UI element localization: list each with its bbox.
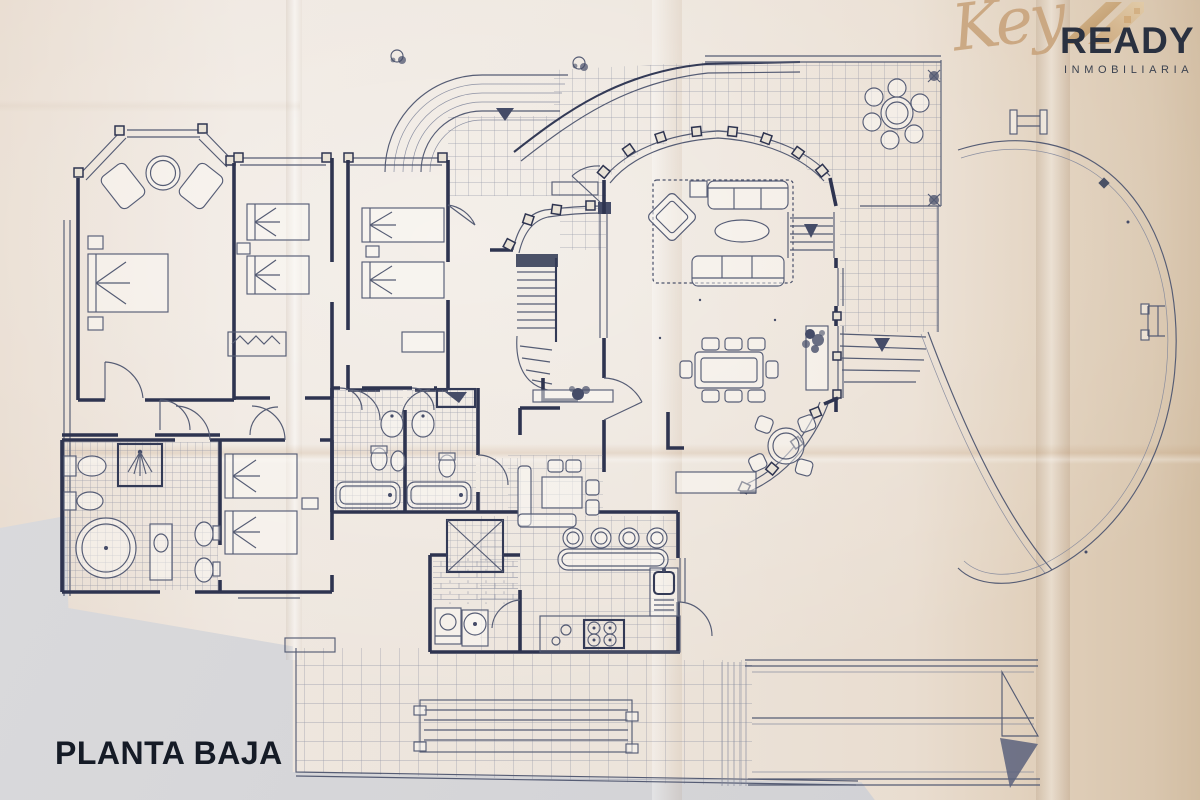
sofa [692,256,784,286]
bedroom-2 [228,153,332,398]
terrace-oval [958,110,1176,583]
bedroom-4 [220,406,332,598]
ramp-structure [722,660,1040,788]
side-table [690,181,707,197]
dining-table-set [680,338,778,402]
stair-landing [516,254,558,267]
sofa [708,181,788,209]
armchair [647,192,698,243]
vanity [150,524,172,580]
toilet [371,446,387,470]
entrance-hall [490,166,611,400]
washing-machine [435,608,461,644]
bathtub [336,482,400,508]
single-bed [362,262,444,298]
gate [1141,304,1165,340]
single-bed [247,204,309,240]
plant-icon [391,50,406,64]
brand-subtitle: INMOBILIARIA [1064,64,1193,76]
living-room [597,126,1052,573]
floor-plan-drawing [0,0,1200,800]
floor-label: PLANTA BAJA [55,735,283,772]
single-bed [225,511,297,554]
single-bed [362,208,444,242]
dresser [402,332,444,352]
coffee-table [715,220,769,242]
breakfast-nook [668,398,838,494]
fence-post [1098,177,1109,188]
single-bed [225,454,297,498]
single-bed [247,256,309,294]
toilet [439,453,455,477]
terrace-top [380,40,950,340]
floor-plan-photo: PLANTA BAJA Key READY INMOBILIARIA [0,0,1200,800]
round-table-set [747,414,817,477]
staircase [517,258,556,390]
direction-arrow [1000,738,1038,788]
washbasin [412,411,434,437]
washbasin [381,411,403,437]
garden-wall [676,472,756,493]
table-and-chairs [99,156,225,211]
kitchen-sink [650,568,678,616]
terrace-steps-upper [788,212,834,258]
double-bed [88,236,168,330]
gate [1010,110,1047,134]
brand-logo: Key READY INMOBILIARIA [940,0,1200,92]
boiler [462,610,488,646]
terrace-steps-right [840,332,1052,573]
bidet [391,451,405,471]
brand-script: Key [948,0,1067,66]
toilet [64,456,106,476]
bidet [64,492,103,510]
bathtub [407,482,471,508]
round-bathtub [76,518,136,578]
wardrobe [228,332,286,356]
brand-name: READY [1060,20,1195,62]
